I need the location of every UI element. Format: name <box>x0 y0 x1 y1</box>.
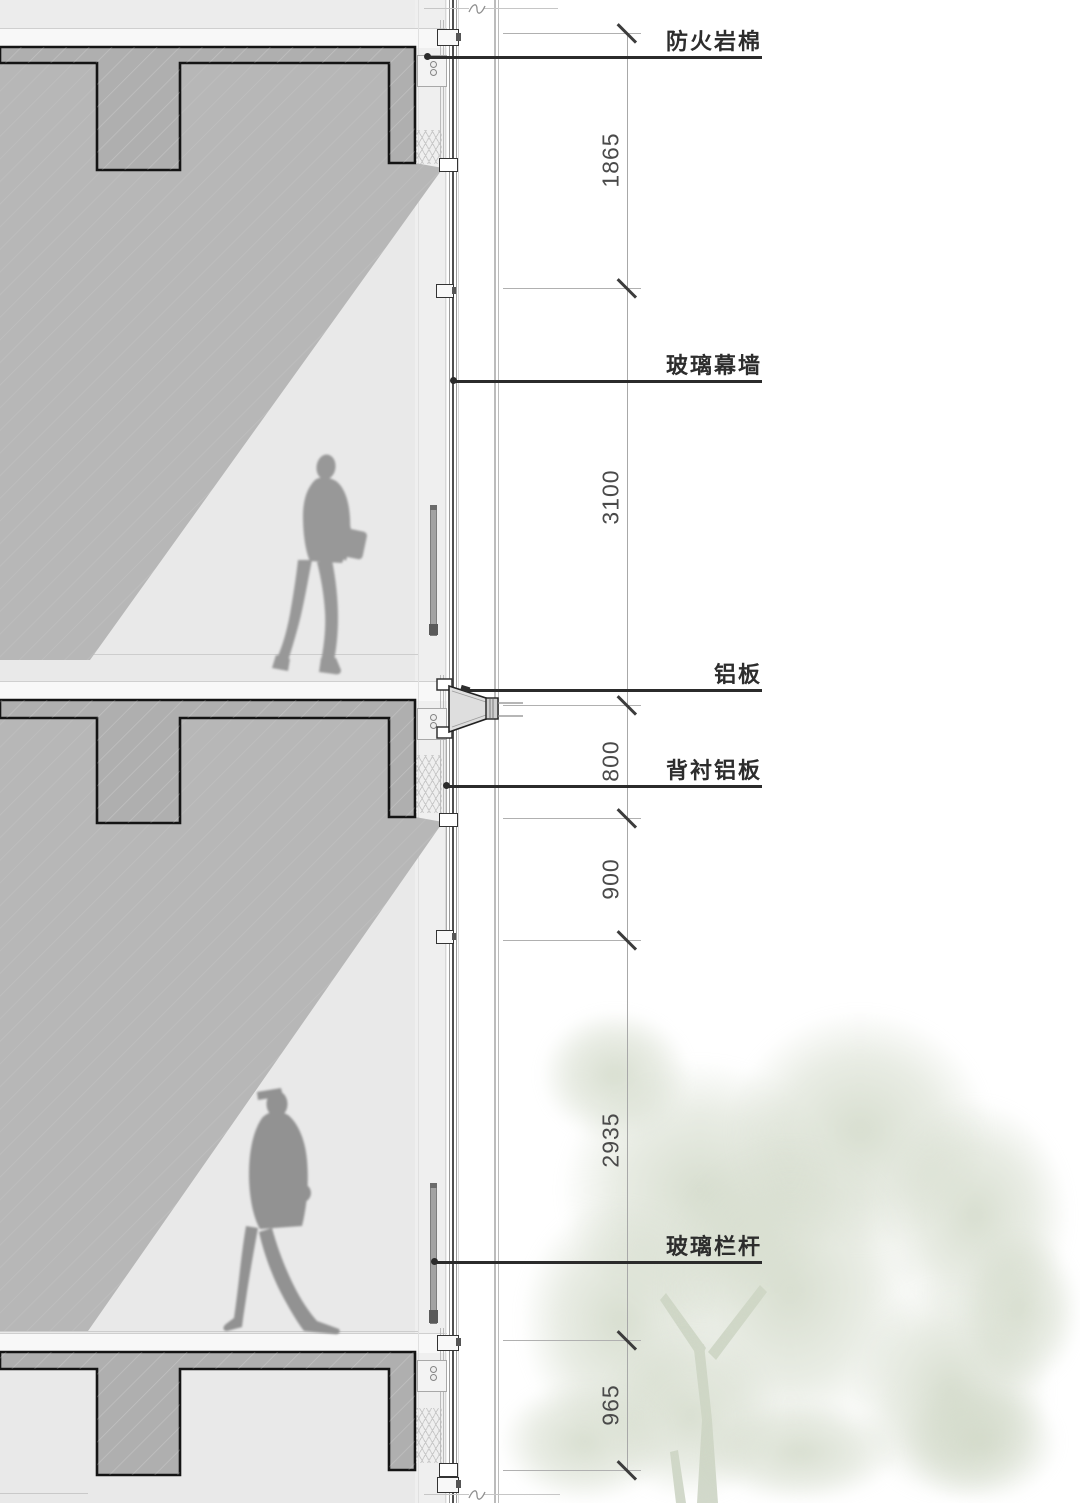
extension-line <box>503 818 641 819</box>
bolt-icon <box>430 1366 437 1373</box>
dimension-value-900: 900 <box>598 858 625 899</box>
glass-balustrade-upper <box>431 507 436 635</box>
glass-pane-line-1 <box>449 0 450 1503</box>
leader-line <box>446 785 762 788</box>
extension-line <box>503 705 641 706</box>
extension-line <box>503 288 641 289</box>
person-silhouette-upper <box>272 453 368 674</box>
leader-dot-icon <box>443 782 450 789</box>
bracket-pin <box>452 287 456 294</box>
glass-pane-line-2 <box>452 0 454 1503</box>
slab-edge-anchor <box>439 813 458 827</box>
bolt-icon <box>430 1374 437 1381</box>
leader-line <box>453 380 762 383</box>
leader-line <box>427 56 762 59</box>
label-glass-curtain-wall: 玻璃幕墙 <box>402 354 762 378</box>
balustrade-shoe <box>429 1310 438 1323</box>
break-line-bottom <box>484 1494 560 1495</box>
dimension-value-965: 965 <box>598 1384 625 1425</box>
leader-line <box>434 1261 762 1264</box>
slab-edge-anchor <box>439 1463 458 1477</box>
structure-layer <box>0 0 1080 1503</box>
clamp-fitting <box>456 1338 461 1346</box>
leader-dot-icon <box>424 53 431 60</box>
bolt-icon <box>430 69 437 76</box>
break-line-bottom-left <box>0 1493 88 1494</box>
label-glass-balustrade: 玻璃栏杆 <box>402 1235 762 1259</box>
leader-dot-icon <box>431 1258 438 1265</box>
facade-outer-plane-line-1 <box>494 0 496 1503</box>
facade-outer-plane-line-2 <box>498 0 500 1503</box>
dimension-value-2935: 2935 <box>598 1112 625 1167</box>
person-silhouette-lower <box>223 1088 339 1334</box>
bracket-pin <box>452 933 456 940</box>
slab-edge-anchor <box>439 158 458 172</box>
label-fireproof-rockwool: 防火岩棉 <box>402 30 762 54</box>
balustrade-shoe <box>429 624 438 635</box>
concrete-slab-3 <box>0 1352 415 1475</box>
extension-line <box>503 1340 641 1341</box>
leader-dot-icon <box>450 377 457 384</box>
facade-section-drawing: 1865 3100 800 900 2935 965 防火岩棉 玻璃幕墙 铝板 … <box>0 0 1080 1503</box>
glass-outer-edge-line <box>458 0 459 1503</box>
balustrade-cap <box>430 505 437 510</box>
balustrade-cap <box>430 1183 437 1188</box>
dimension-value-3100: 3100 <box>598 469 625 524</box>
leader-line <box>466 689 762 692</box>
break-symbol-icon <box>460 1486 492 1503</box>
glass-pane-line-3 <box>456 0 457 1503</box>
bolt-icon <box>430 61 437 68</box>
break-line-top <box>484 8 558 9</box>
firestop-wool-hatch <box>416 1408 442 1463</box>
break-symbol-icon <box>460 0 492 20</box>
label-backing-aluminum-panel: 背衬铝板 <box>402 759 762 783</box>
extension-line <box>503 940 641 941</box>
extension-line <box>503 1470 641 1471</box>
dimension-value-1865: 1865 <box>598 132 625 187</box>
label-aluminum-panel: 铝板 <box>402 663 762 687</box>
